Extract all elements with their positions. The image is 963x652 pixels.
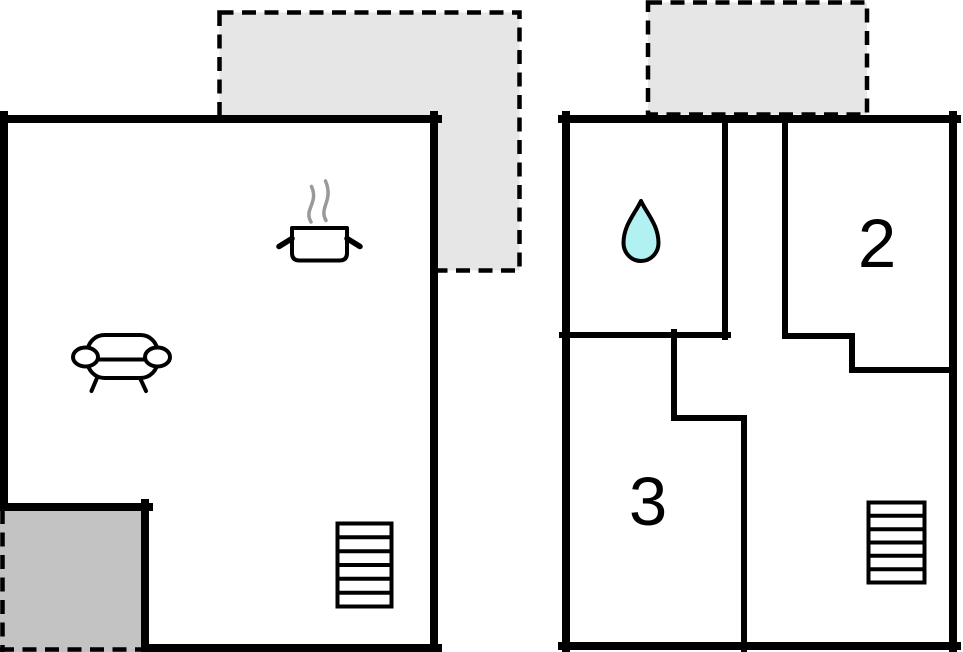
- patio-area: [0, 503, 148, 652]
- sofa-armrest-left: [73, 348, 98, 367]
- stairs-icon: [338, 524, 392, 607]
- ground-floor-plan: [0, 13, 520, 652]
- balcony-area: [648, 3, 867, 115]
- upper-floor-plan: 2 3: [562, 3, 957, 652]
- room-label-bedroom-2: 2: [858, 205, 896, 282]
- pot-body: [292, 228, 347, 261]
- sofa-armrest-right: [145, 348, 170, 367]
- floor-plan-canvas: 2 3: [0, 0, 963, 652]
- room-label-bedroom-3: 3: [629, 463, 667, 540]
- stairs-icon-upper: [869, 503, 925, 583]
